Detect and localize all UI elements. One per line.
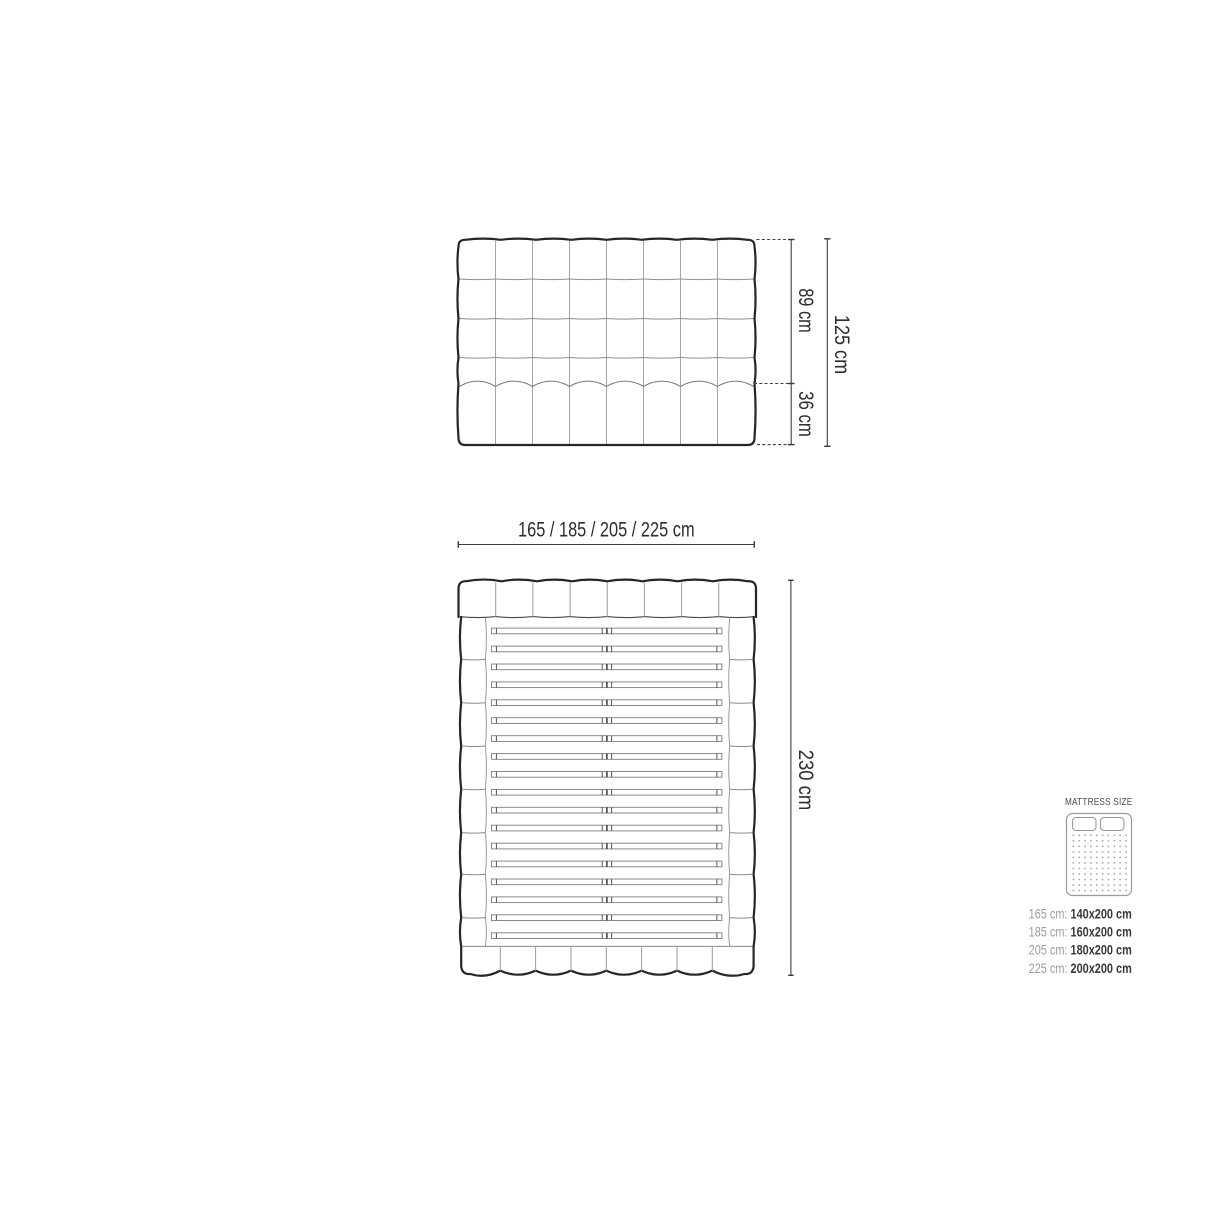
svg-text:36 cm: 36 cm [793,391,816,437]
svg-text:89 cm: 89 cm [795,288,818,333]
svg-text:MATTRESS SIZE: MATTRESS SIZE [1065,795,1132,807]
svg-text:165 / 185 / 205 / 225 cm: 165 / 185 / 205 / 225 cm [518,518,695,541]
svg-text:225 cm: 200x200 cm: 225 cm: 200x200 cm [1029,961,1132,977]
svg-text:230 cm: 230 cm [793,750,816,811]
svg-text:165 cm: 140x200 cm: 165 cm: 140x200 cm [1029,906,1132,922]
svg-text:185 cm: 160x200 cm: 185 cm: 160x200 cm [1029,924,1132,940]
svg-text:125 cm: 125 cm [829,315,853,374]
svg-text:205 cm: 180x200 cm: 205 cm: 180x200 cm [1029,942,1132,958]
